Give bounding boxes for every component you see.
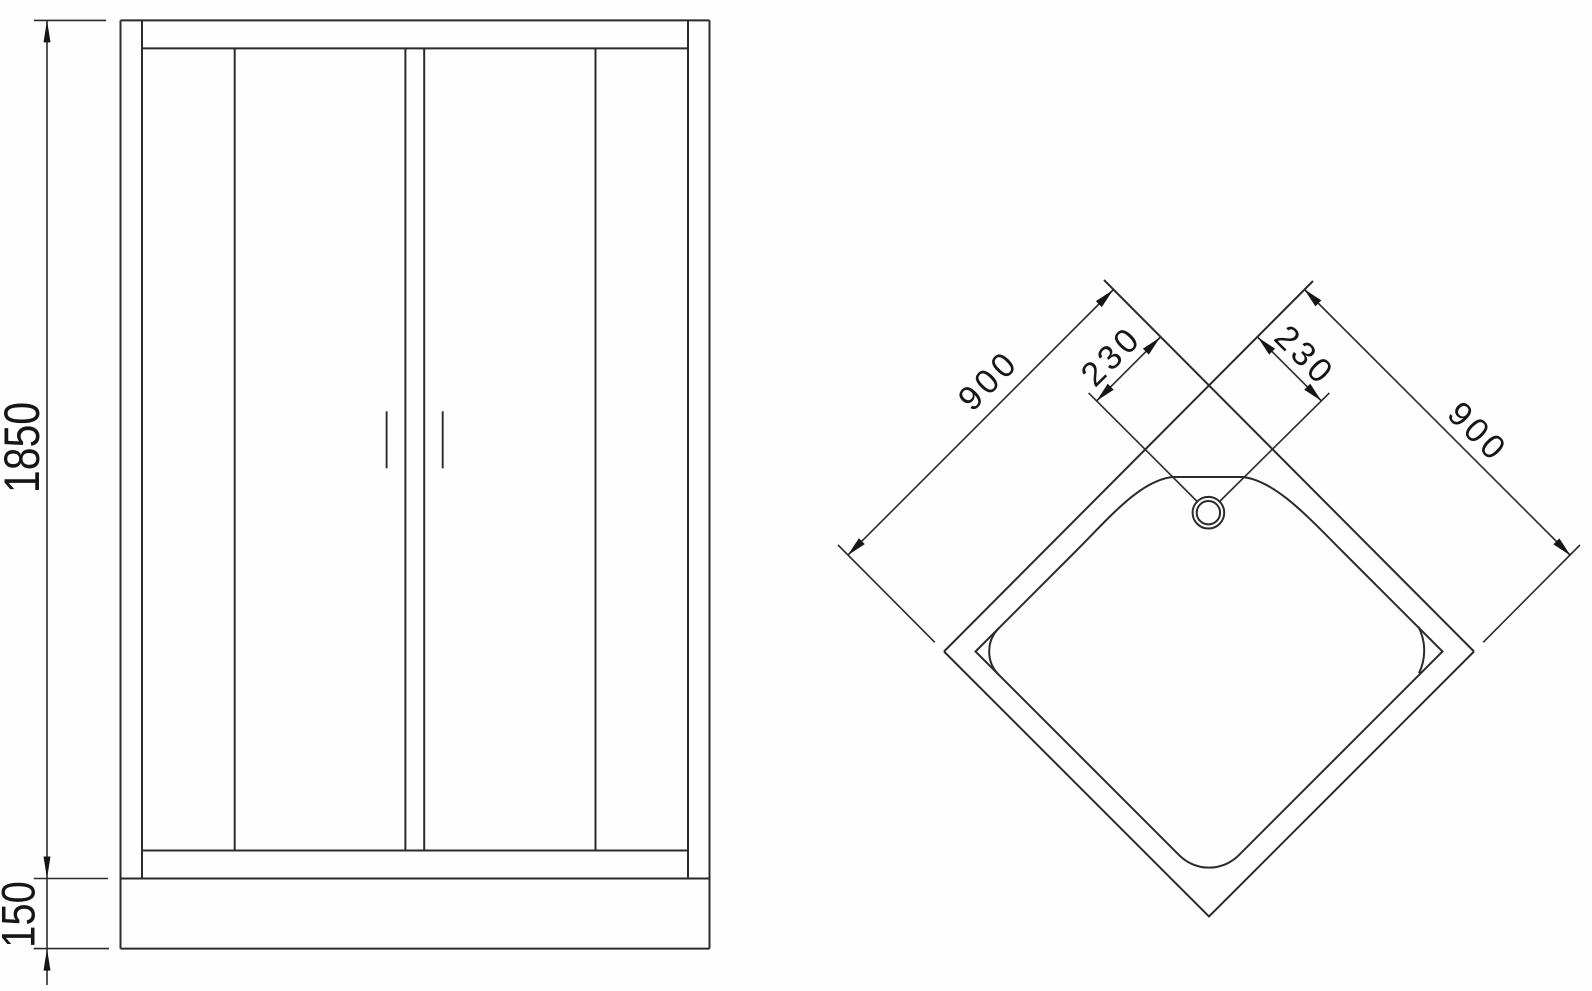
svg-text:230: 230 <box>1074 319 1149 394</box>
svg-text:230: 230 <box>1267 318 1342 393</box>
svg-text:1850: 1850 <box>0 402 50 493</box>
svg-text:150: 150 <box>0 881 45 948</box>
svg-text:900: 900 <box>951 343 1026 418</box>
svg-text:900: 900 <box>1440 394 1515 469</box>
